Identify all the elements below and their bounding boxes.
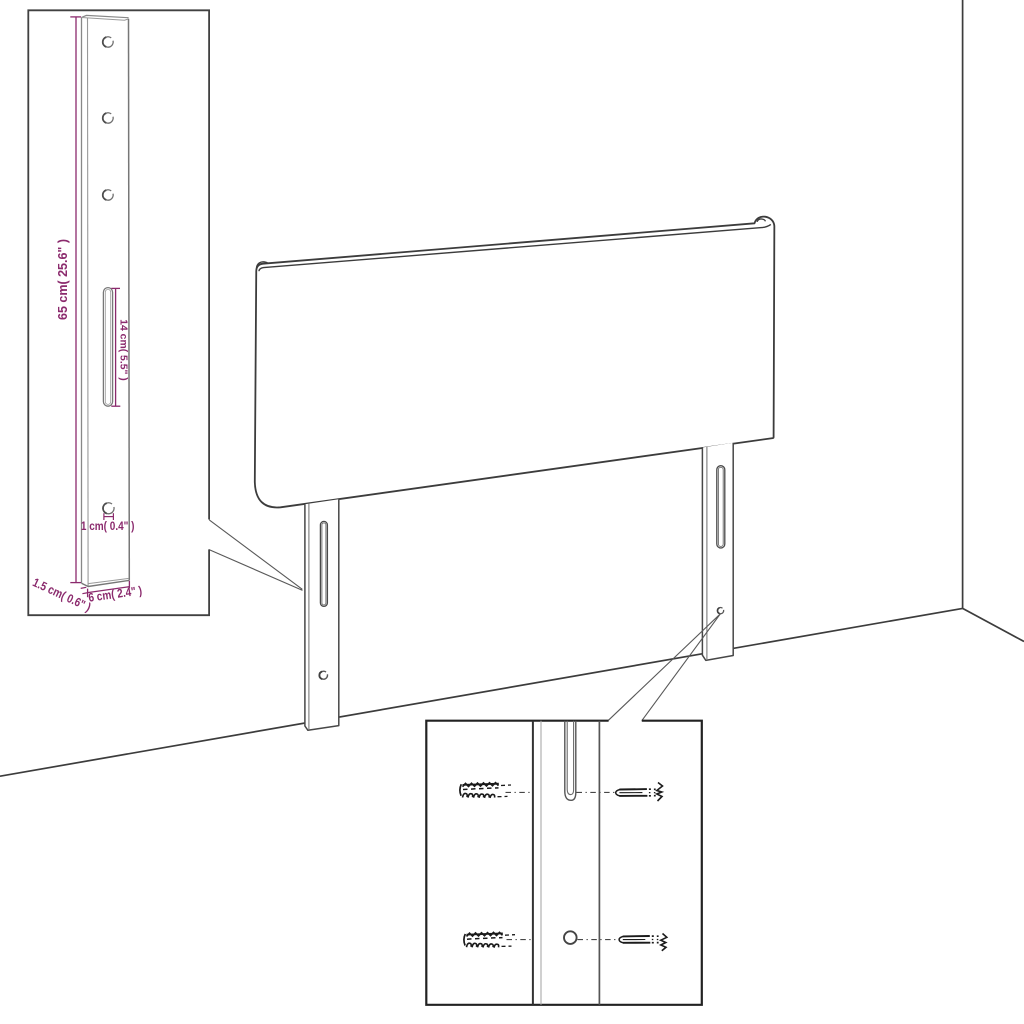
svg-text:1 cm( 0.4" ): 1 cm( 0.4" ) xyxy=(81,519,135,533)
svg-text:65 cm( 25.6" ): 65 cm( 25.6" ) xyxy=(55,239,70,320)
svg-text:14 cm( 5.5" ): 14 cm( 5.5" ) xyxy=(117,319,128,381)
